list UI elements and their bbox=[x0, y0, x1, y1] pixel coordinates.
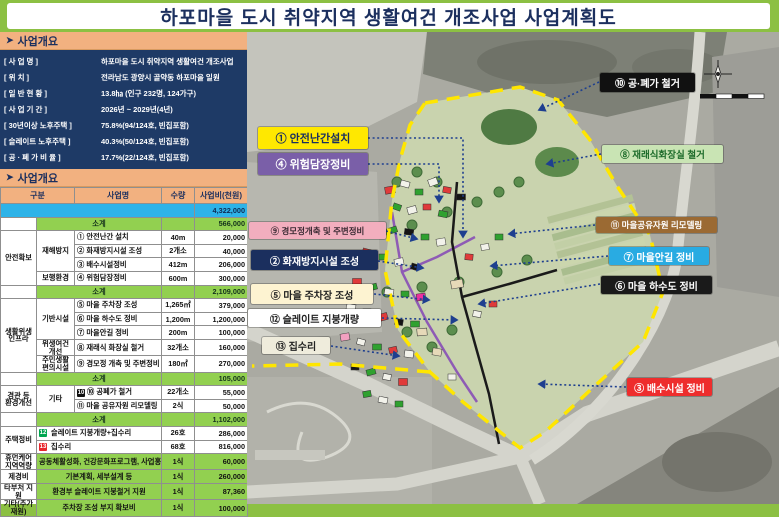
building bbox=[388, 346, 397, 354]
building bbox=[465, 254, 473, 261]
building bbox=[404, 350, 414, 358]
left-panel: ➤ 사업개요 [ 사 업 명 ]하포마을 도시 취약지역 생활여건 개조사업[ … bbox=[0, 32, 247, 504]
tree-icon bbox=[447, 325, 457, 335]
building bbox=[373, 344, 382, 350]
budget-item-name: ⑨ 경모정 개축 및 주변정비 bbox=[75, 356, 162, 372]
budget-row: 안전확보재해방지① 안전난간 설치40m20,000 bbox=[1, 231, 248, 245]
page-title: 하포마을 도시 취약지역 생활여건 개조사업 사업계획도 bbox=[160, 3, 616, 30]
budget-item-name: ④ 위험담장정비 bbox=[75, 271, 162, 285]
map-callout-1: ① 안전난간설치 bbox=[258, 127, 368, 149]
map-callout-11: ⑦ 마을안길 정비 bbox=[609, 247, 709, 265]
building bbox=[432, 348, 442, 356]
budget-item-name: ⑥ 마을 하수도 정비 bbox=[75, 312, 162, 326]
building bbox=[411, 321, 420, 327]
budget-item-name: 12 슬레이트 지붕개량+집수리 bbox=[37, 426, 162, 440]
arrow-icon: ➤ bbox=[6, 35, 14, 46]
tree-icon bbox=[514, 177, 524, 187]
budget-row: 생활위생 인프라기반시설⑤ 마을 주차장 조성1,265㎡379,000 bbox=[1, 299, 248, 313]
budget-category: 타부처 지원 bbox=[1, 484, 37, 500]
forest-texture bbox=[662, 432, 772, 492]
title-bar: 하포마을 도시 취약지역 생활여건 개조사업 사업계획도 bbox=[0, 0, 779, 32]
budget-row: 위생여건개선⑧ 재래식 화장실 철거32개소160,000 bbox=[1, 339, 248, 355]
budget-item-name: 13 집수리 bbox=[37, 440, 162, 454]
overview-row-label: [ 30년이상 노후주택 ] bbox=[0, 120, 101, 131]
tree-icon bbox=[492, 267, 502, 277]
map-callout-13: ③ 배수시설 정비 bbox=[627, 378, 712, 396]
budget-row: 타부처 지원환경부 슬레이트 지붕철거 지원1식87,360 bbox=[1, 484, 248, 500]
budget-row: 소계2,109,000 bbox=[1, 285, 248, 299]
budget-category: 휴먼케어 지역역량 bbox=[1, 454, 37, 470]
budget-row: 휴먼케어 지역역량공동체활성화, 건강문화프로그램, 사업홍보 등1식60,00… bbox=[1, 454, 248, 470]
overview-row-label: [ 슬레이트 노후주택 ] bbox=[0, 136, 101, 147]
overview-row-label: [ 공 · 폐 가 비 율 ] bbox=[0, 152, 101, 163]
budget-row: 4,322,000 bbox=[1, 204, 248, 218]
overview-row: [ 공 · 폐 가 비 율 ]17.7%(22/124호, 빈집포함) bbox=[0, 149, 247, 165]
tree-icon bbox=[494, 187, 504, 197]
budget-item-name: ⑤ 마을 주차장 조성 bbox=[75, 299, 162, 313]
building bbox=[340, 333, 350, 341]
budget-item-name: ⑪ 마을 공유자원 리모델링 bbox=[75, 399, 162, 413]
building bbox=[421, 234, 429, 240]
building bbox=[399, 379, 408, 386]
budget-row: 기타(추가재원)주차장 조성 부지 확보비1식100,000 bbox=[1, 500, 248, 516]
overview-row: [ 30년이상 노후주택 ]75.8%(94/124호, 빈집포함) bbox=[0, 117, 247, 133]
map-callout-5: ⑤ 마을 주차장 조성 bbox=[251, 284, 373, 304]
map-callout-6: ⑫ 슬레이트 지붕개량 bbox=[248, 309, 381, 327]
overview-row-value: 2026년 ~ 2029년(4년) bbox=[101, 104, 173, 115]
forest-texture bbox=[477, 40, 617, 84]
overview-row-label: [ 일 반 현 황 ] bbox=[0, 88, 101, 99]
overview-row-value: 17.7%(22/124호, 빈집포함) bbox=[101, 152, 189, 163]
overview-row: [ 일 반 현 황 ]13.8㏊ (인구 232명, 124가구) bbox=[0, 85, 247, 101]
tree-icon bbox=[472, 197, 482, 207]
building bbox=[457, 194, 466, 200]
budget-row: 소계105,000 bbox=[1, 372, 248, 386]
overview-row: [ 사 업 명 ]하포마을 도시 취약지역 생활여건 개조사업 bbox=[0, 53, 247, 69]
budget-category: 제경비 bbox=[1, 470, 37, 484]
map-callout-4: ② 화재방지시설 조성 bbox=[251, 250, 378, 270]
water-east bbox=[712, 47, 779, 297]
map-callout-9: ⑧ 재래식화장실 철거 bbox=[602, 145, 723, 163]
budget-item-name: ③ 배수시설정비 bbox=[75, 258, 162, 272]
building bbox=[417, 328, 428, 336]
budget-row: 13 집수리68호816,000 bbox=[1, 440, 248, 454]
overview-row-value: 하포마을 도시 취약지역 생활여건 개조사업 bbox=[101, 56, 234, 67]
building bbox=[450, 279, 463, 289]
budget-header-row: 구분사업명수량사업비(천원) bbox=[1, 188, 248, 204]
budget-header-label: 사업개요 bbox=[18, 170, 58, 186]
scale-bar bbox=[700, 94, 764, 99]
tree-icon bbox=[407, 220, 417, 230]
budget-row: 주택정비12 슬레이트 지붕개량+집수리26호286,000 bbox=[1, 426, 248, 440]
parking-lot bbox=[255, 450, 325, 460]
budget-row: 주민생활 편의시설⑨ 경모정 개축 및 주변정비180㎡270,000 bbox=[1, 356, 248, 372]
map-callout-10: ⑪ 마을공유자원 리모델링 bbox=[596, 217, 717, 233]
building bbox=[404, 228, 414, 235]
overview-row-label: [ 위 치 ] bbox=[0, 72, 101, 83]
overview-row-label: [ 사 업 명 ] bbox=[0, 56, 101, 67]
budget-row: 소계1,102,000 bbox=[1, 413, 248, 427]
tree-icon bbox=[417, 282, 427, 292]
overview-row: [ 사 업 기 간 ]2026년 ~ 2029년(4년) bbox=[0, 101, 247, 117]
budget-row: 경관 등 환경개선기타10⑩ 공폐가 철거22개소55,000 bbox=[1, 386, 248, 400]
building bbox=[395, 401, 403, 407]
building bbox=[473, 310, 482, 317]
overview-header-label: 사업개요 bbox=[18, 33, 58, 49]
building bbox=[423, 204, 431, 210]
building bbox=[401, 291, 409, 297]
overview-row: [ 슬레이트 노후주택 ]40.3%(50/124호, 빈집포함) bbox=[0, 133, 247, 149]
map-callout-2: ④ 위험담장정비 bbox=[258, 153, 368, 175]
budget-table: 구분사업명수량사업비(천원)4,322,000소계566,000안전확보재해방지… bbox=[0, 187, 248, 517]
tree-cluster bbox=[481, 109, 537, 145]
budget-row: 보행환경④ 위험담장정비600m300,000 bbox=[1, 271, 248, 285]
map-callout-8: ⑩ 공·폐가 철거 bbox=[600, 73, 695, 92]
overview-header: ➤ 사업개요 bbox=[0, 32, 247, 50]
budget-item-name: ⑦ 마을안길 정비 bbox=[75, 326, 162, 340]
map-callout-3: ⑨ 경모정개축 및 주변정비 bbox=[249, 222, 386, 239]
item-number-chip: 12 bbox=[39, 429, 47, 437]
budget-header: ➤ 사업개요 bbox=[0, 169, 247, 187]
map-callout-12: ⑥ 마을 하수도 정비 bbox=[601, 276, 712, 294]
map-callout-7: ⑬ 집수리 bbox=[262, 337, 330, 354]
building bbox=[481, 243, 490, 250]
budget-item-name: ② 화재방지시설 조성 bbox=[75, 244, 162, 258]
building bbox=[415, 189, 423, 195]
budget-item-name: ⑧ 재래식 화장실 철거 bbox=[75, 339, 162, 355]
tree-icon bbox=[412, 167, 422, 177]
overview-row-value: 13.8㏊ (인구 232명, 124가구) bbox=[101, 88, 196, 99]
budget-item-name: ① 안전난간 설치 bbox=[75, 231, 162, 245]
arrow-icon: ➤ bbox=[6, 172, 14, 183]
tree-cluster bbox=[535, 147, 579, 177]
overview-row-value: 75.8%(94/124호, 빈집포함) bbox=[101, 120, 189, 131]
overview-row-label: [ 사 업 기 간 ] bbox=[0, 104, 101, 115]
building bbox=[383, 373, 392, 380]
budget-category: 기타(추가재원) bbox=[1, 500, 37, 516]
overview-row: [ 위 치 ]전라남도 광양시 골약동 하포마을 일원 bbox=[0, 69, 247, 85]
overview-row-value: 전라남도 광양시 골약동 하포마을 일원 bbox=[101, 72, 220, 83]
title-box: 하포마을 도시 취약지역 생활여건 개조사업 사업계획도 bbox=[7, 3, 770, 29]
budget-item-name: 10⑩ 공폐가 철거 bbox=[75, 386, 162, 400]
building bbox=[436, 238, 446, 246]
building bbox=[448, 374, 456, 380]
tree-icon bbox=[522, 255, 532, 265]
building bbox=[443, 186, 452, 193]
item-number-chip: 13 bbox=[39, 443, 47, 451]
budget-row: 제경비기본계획, 세부설계 등1식260,000 bbox=[1, 470, 248, 484]
overview-row-value: 40.3%(50/124호, 빈집포함) bbox=[101, 136, 189, 147]
building bbox=[363, 390, 372, 397]
building bbox=[495, 234, 503, 240]
overview-info-box: [ 사 업 명 ]하포마을 도시 취약지역 생활여건 개조사업[ 위 치 ]전라… bbox=[0, 50, 247, 169]
budget-row: 소계566,000 bbox=[1, 217, 248, 231]
item-number-chip: 10 bbox=[77, 389, 85, 397]
